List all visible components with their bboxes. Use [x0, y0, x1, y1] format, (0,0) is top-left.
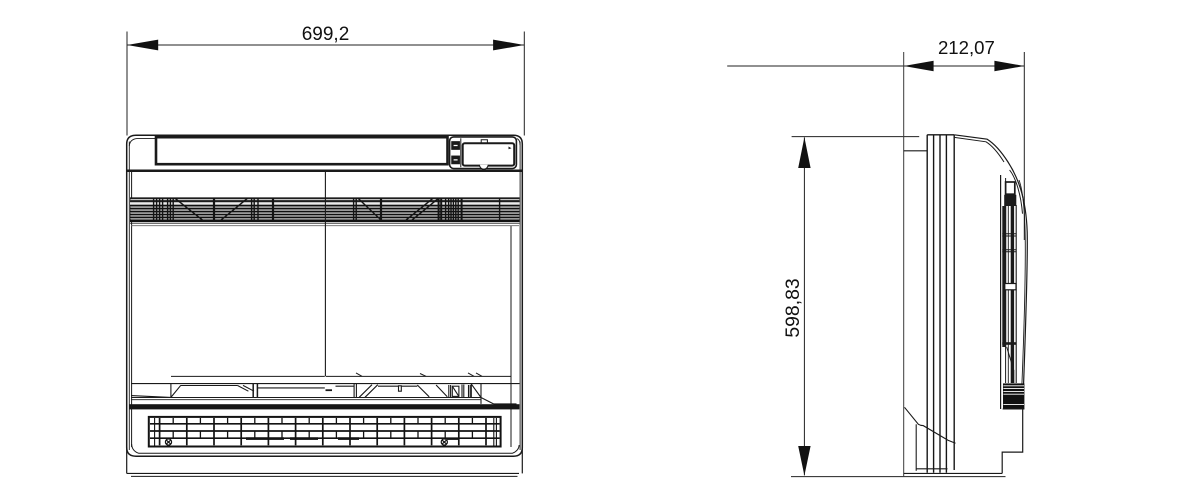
svg-text:212,07: 212,07: [938, 37, 995, 58]
svg-text:699,2: 699,2: [302, 24, 350, 45]
svg-text:598,83: 598,83: [782, 278, 804, 337]
